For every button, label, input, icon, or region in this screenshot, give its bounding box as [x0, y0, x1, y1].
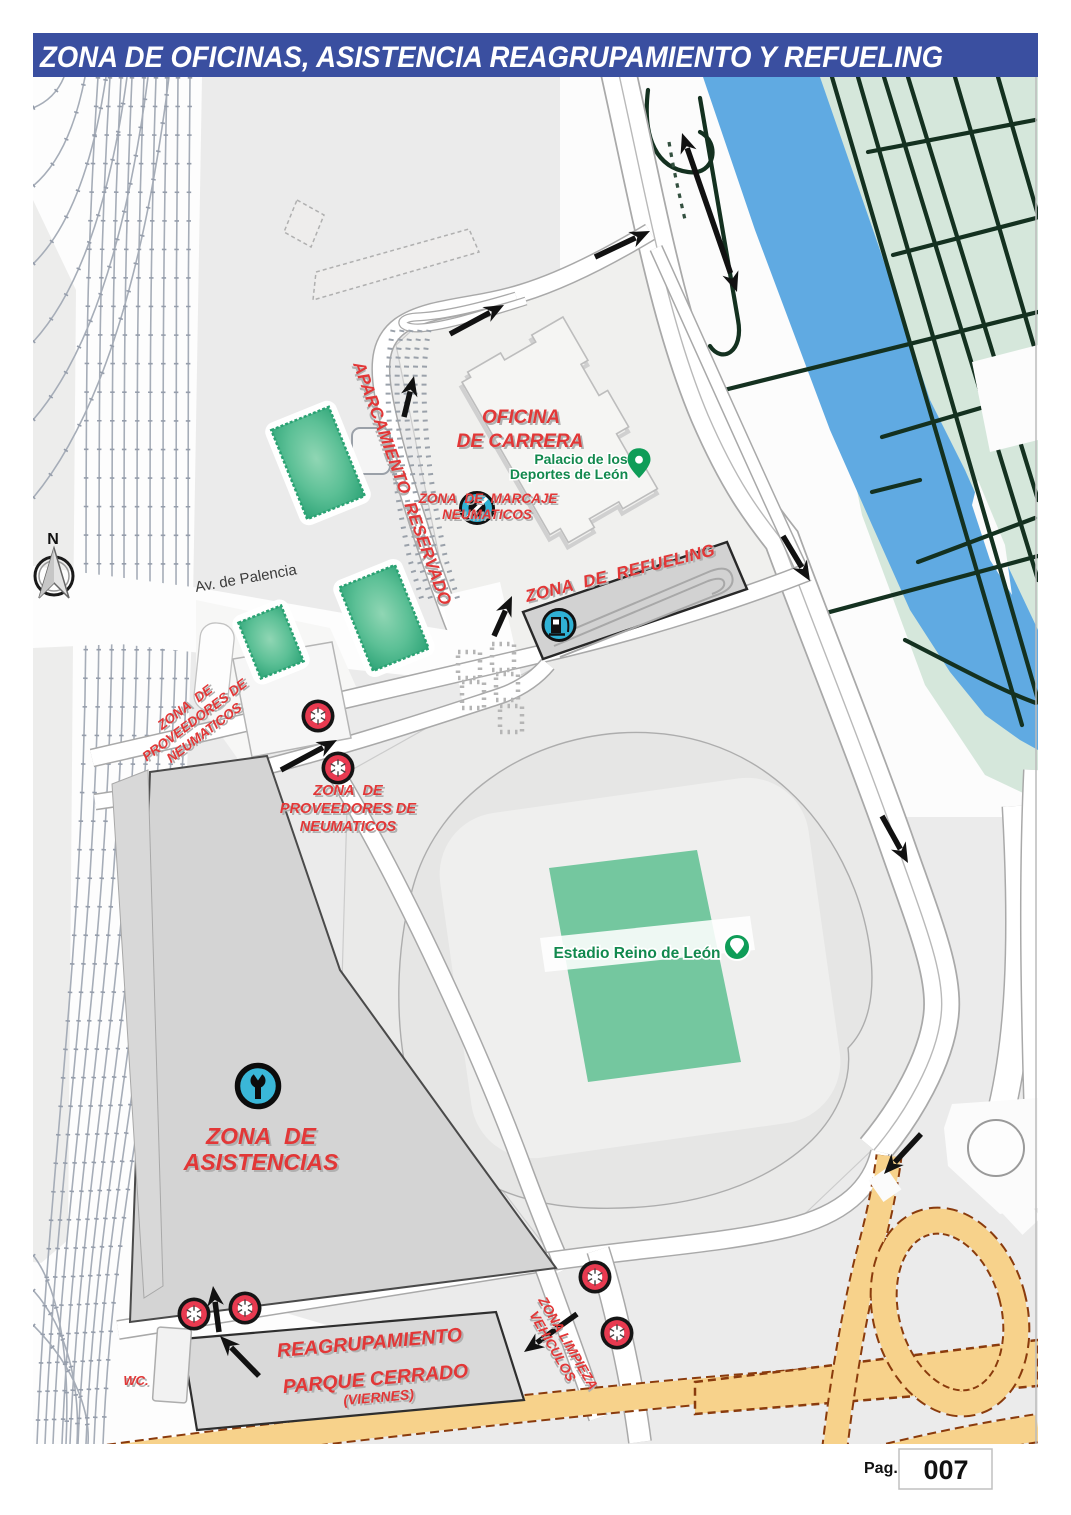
svg-text:ZONA DE MARCAJE: ZONA DE MARCAJE	[418, 491, 559, 506]
svg-text:Estadio Reino de León: Estadio Reino de León	[553, 945, 720, 962]
svg-text:Palacio de los: Palacio de los	[534, 451, 628, 467]
svg-text:ZONA DE OFICINAS, ASISTENCIA R: ZONA DE OFICINAS, ASISTENCIA REAGRUPAMIE…	[39, 41, 943, 74]
svg-text:DE CARRERA: DE CARRERA	[457, 431, 584, 452]
svg-text:ZONA DE: ZONA DE	[312, 783, 384, 799]
svg-text:007: 007	[923, 1455, 968, 1485]
svg-text:Deportes de León: Deportes de León	[510, 466, 628, 482]
svg-text:OFICINA: OFICINA	[482, 407, 560, 428]
svg-text:Pag.: Pag.	[864, 1460, 898, 1477]
svg-text:NEUMATICOS: NEUMATICOS	[442, 507, 532, 522]
svg-text:PROVEEDORES DE: PROVEEDORES DE	[280, 801, 417, 817]
svg-text:ASISTENCIAS: ASISTENCIAS	[183, 1149, 339, 1175]
svg-text:NEUMATICOS: NEUMATICOS	[300, 819, 397, 835]
svg-text:ZONA DE: ZONA DE	[205, 1123, 317, 1149]
svg-text:N: N	[47, 531, 59, 548]
svg-text:WC.: WC.	[123, 1373, 148, 1388]
